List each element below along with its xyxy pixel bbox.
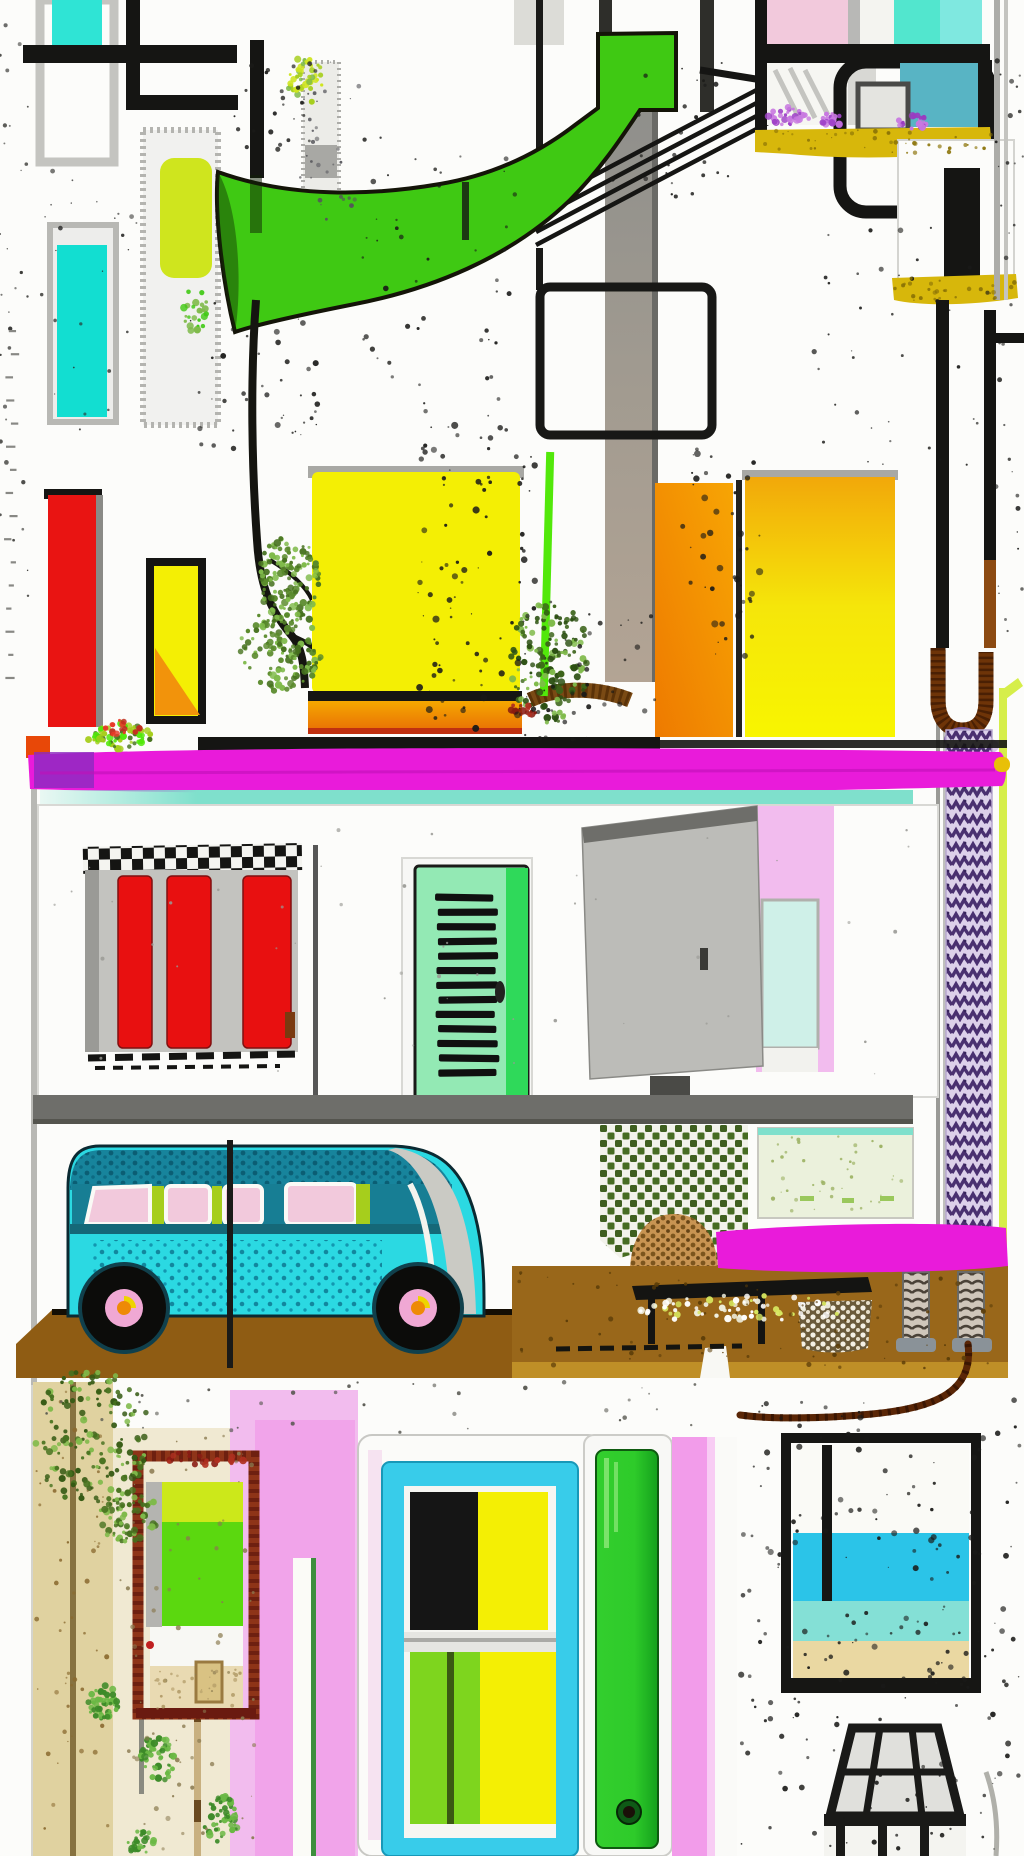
garden-bed [136, 1456, 256, 1718]
chartreuse-panel [160, 158, 212, 278]
big-yellow-square [308, 466, 524, 734]
door-glass [762, 900, 818, 1048]
slatted-window [83, 843, 302, 874]
red-bar [48, 495, 98, 727]
collage-root [0, 0, 1024, 1856]
black-slot [944, 168, 980, 288]
van-window [86, 1186, 150, 1224]
house-interior [38, 805, 938, 1120]
amber-panel [745, 477, 895, 737]
seam-line [227, 1140, 233, 1368]
shallow-pane [793, 1601, 969, 1641]
checker-lintel [83, 843, 302, 874]
black-pane [410, 1492, 478, 1630]
right-panels [655, 470, 898, 737]
yellow-tip [994, 757, 1010, 772]
ladder-line-a [936, 300, 949, 648]
cyan-window [52, 0, 102, 47]
tree-trunk-top [250, 40, 264, 178]
center-window [358, 1435, 602, 1856]
red-slat [118, 876, 152, 1048]
green-pane [410, 1652, 480, 1824]
sand-pane [793, 1641, 969, 1681]
yellow-pane [478, 1492, 548, 1630]
orange-panel [655, 483, 733, 737]
purple-pole [944, 727, 999, 1268]
collage-art [0, 0, 1024, 1856]
cyan-panel [57, 245, 107, 417]
sea-pane [793, 1533, 969, 1601]
pipe-bar-v [126, 0, 140, 110]
pink-stripe [672, 1437, 737, 1856]
door-leaf [582, 806, 763, 1079]
van-wheel [376, 1266, 460, 1350]
pipe-bar-h2 [126, 95, 238, 110]
green-door [584, 1435, 672, 1856]
van-wheel [82, 1266, 166, 1350]
red-slat [167, 876, 211, 1048]
aqua-pane-2 [940, 0, 982, 44]
wall-seam [313, 845, 318, 1095]
red-slat [243, 876, 291, 1048]
green-trim-line [311, 1558, 316, 1856]
shutter-door [402, 858, 532, 1120]
van-window [286, 1184, 356, 1224]
sky-pane [793, 1445, 969, 1533]
yellow-pane-lower [480, 1652, 556, 1824]
magenta-beam-lower [716, 1224, 1008, 1272]
pink-pane [765, 0, 848, 44]
wire-basket [798, 1300, 872, 1353]
pale-green-panel [758, 1128, 913, 1218]
aqua-pane [894, 0, 940, 44]
open-door [582, 806, 834, 1079]
door-handle [495, 981, 505, 1003]
left-wall-line [31, 745, 37, 1385]
door-leaf-handle [700, 948, 708, 970]
bed-box [196, 1662, 222, 1702]
van-window [166, 1186, 210, 1224]
